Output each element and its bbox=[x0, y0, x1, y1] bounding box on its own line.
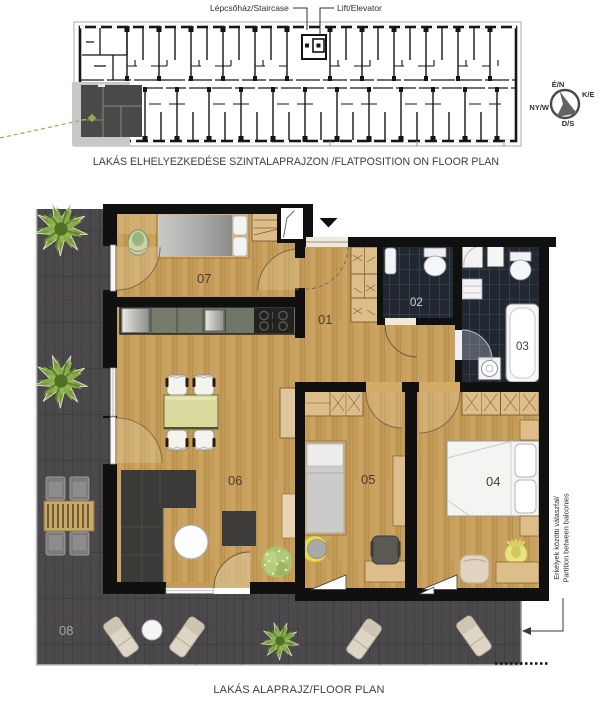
svg-text:D/S: D/S bbox=[562, 119, 575, 128]
svg-text:Partition between balconies: Partition between balconies bbox=[562, 493, 571, 583]
svg-text:LAKÁS ELHELYEZKEDÉSE SZINTALAP: LAKÁS ELHELYEZKEDÉSE SZINTALAPRAJZON /FL… bbox=[93, 155, 499, 168]
svg-text:NY/W: NY/W bbox=[529, 103, 550, 112]
svg-text:Lift/Elevator: Lift/Elevator bbox=[337, 3, 382, 13]
svg-text:05: 05 bbox=[361, 472, 375, 487]
svg-text:06: 06 bbox=[228, 473, 242, 488]
svg-text:08: 08 bbox=[59, 623, 73, 638]
svg-text:K/E: K/E bbox=[582, 90, 595, 99]
svg-text:LAKÁS ALAPRAJZ/FLOOR PLAN: LAKÁS ALAPRAJZ/FLOOR PLAN bbox=[213, 683, 384, 696]
svg-text:03: 03 bbox=[516, 341, 529, 353]
svg-text:Lépcsőház/Staircase: Lépcsőház/Staircase bbox=[210, 3, 289, 13]
svg-text:07: 07 bbox=[197, 271, 211, 286]
svg-text:02: 02 bbox=[410, 297, 423, 309]
svg-text:É/N: É/N bbox=[552, 80, 565, 89]
svg-text:Erkélyek közötti válaszfal/: Erkélyek közötti válaszfal/ bbox=[552, 495, 561, 580]
svg-text:04: 04 bbox=[486, 474, 500, 489]
svg-text:01: 01 bbox=[318, 312, 332, 327]
